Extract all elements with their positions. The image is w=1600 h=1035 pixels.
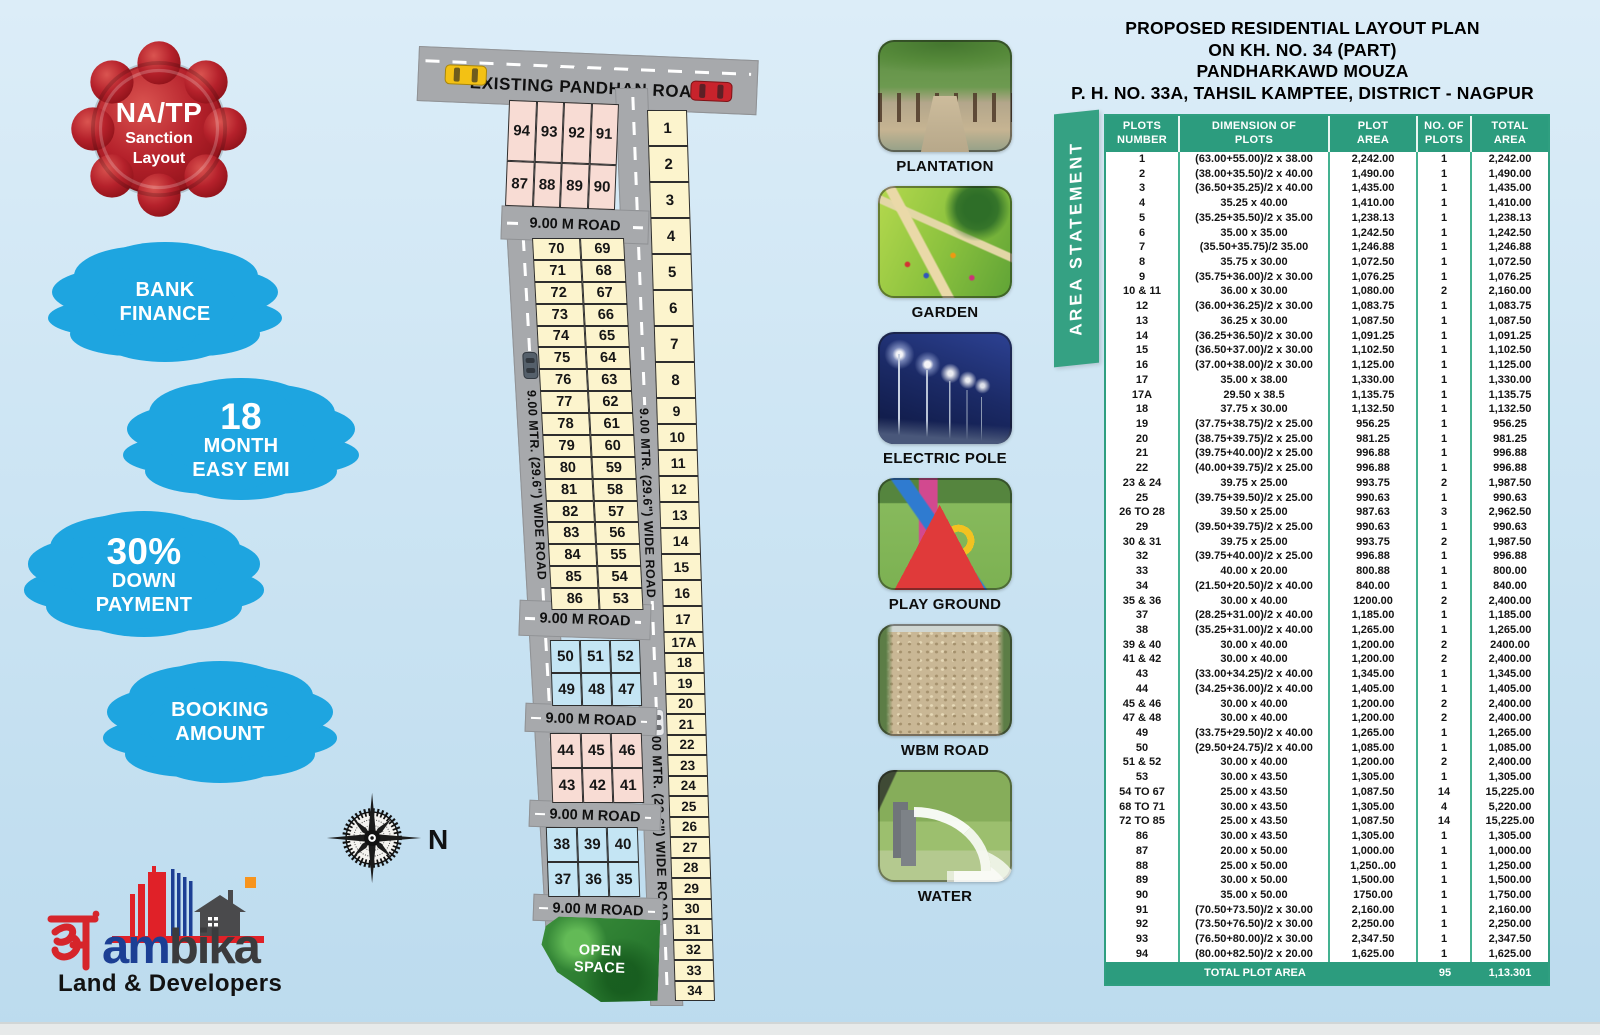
table-cell: 2,400.00: [1472, 697, 1548, 712]
table-cell: 996.88: [1472, 446, 1548, 461]
table-cell: 1,000.00: [1330, 844, 1418, 859]
table-cell: (38.00+35.50)/2 x 40.00: [1180, 167, 1330, 182]
plot-cell: 41: [612, 768, 644, 803]
table-cell: 9: [1106, 270, 1180, 285]
table-cell: (36.50+35.25)/2 x 40.00: [1180, 181, 1330, 196]
table-cell: 2,347.50: [1330, 932, 1418, 947]
table-cell: 1,345.00: [1330, 667, 1418, 682]
table-cell: 18: [1106, 402, 1180, 417]
table-cell: 5: [1106, 211, 1180, 226]
table-cell: 996.88: [1472, 549, 1548, 564]
table-cell: 2: [1418, 697, 1472, 712]
title-line: PROPOSED RESIDENTIAL LAYOUT PLAN: [1030, 18, 1575, 40]
plot-cell: 12: [659, 476, 700, 502]
table-cell: 17: [1106, 373, 1180, 388]
table-cell: 26 TO 28: [1106, 505, 1180, 520]
table-header: PLOTAREA: [1330, 116, 1418, 152]
table-cell: 990.63: [1330, 520, 1418, 535]
plot-cell: 32: [673, 940, 714, 961]
plot-cell: 55: [596, 544, 641, 566]
table-cell: 2,400.00: [1472, 594, 1548, 609]
table-cell: 1200.00: [1330, 594, 1418, 609]
table-cell: 2: [1418, 652, 1472, 667]
table-cell: (33.00+34.25)/2 x 40.00: [1180, 667, 1330, 682]
table-cell: 1,987.50: [1472, 535, 1548, 550]
table-cell: 990.63: [1472, 520, 1548, 535]
plot-cell: 72: [534, 282, 583, 304]
plot-cell: 14: [660, 528, 701, 554]
table-cell: (70.50+73.50)/2 x 30.00: [1180, 903, 1330, 918]
table-cell: (35.25+31.00)/2 x 40.00: [1180, 623, 1330, 638]
amenity-gallery: PLANTATION GARDEN ELECTRIC POLE PLAY GRO…: [872, 40, 1018, 916]
table-cell: 36.25 x 30.00: [1180, 314, 1330, 329]
table-cell: 1,435.00: [1330, 181, 1418, 196]
table-cell: 39.75 x 25.00: [1180, 535, 1330, 550]
table-cell: 1,087.50: [1472, 314, 1548, 329]
table-cell: 987.63: [1330, 505, 1418, 520]
plot-cell: 60: [590, 435, 635, 457]
table-cell: 1,102.50: [1472, 343, 1548, 358]
table-cell: (37.75+38.75)/2 x 25.00: [1180, 417, 1330, 432]
table-cell: 1: [1418, 682, 1472, 697]
plot-block-53-86: 7069716872677366746575647663776278617960…: [532, 238, 643, 610]
table-cell: 8: [1106, 255, 1180, 270]
plot-cell: 36: [578, 862, 610, 897]
natp-sanction-seal: NA/TP Sanction Layout: [70, 40, 248, 222]
plot-cell: 45: [580, 733, 612, 768]
plot-cell: 46: [611, 733, 643, 768]
table-cell: 2: [1418, 755, 1472, 770]
area-statement-banner: AREA STATEMENT: [1054, 110, 1099, 368]
table-cell: 1,135.75: [1472, 388, 1548, 403]
seal-line2: Sanction: [125, 129, 193, 149]
water-photo: [878, 770, 1012, 882]
table-cell: (29.50+24.75)/2 x 40.00: [1180, 741, 1330, 756]
table-cell: 1,345.00: [1472, 667, 1548, 682]
wbm-road-photo: [878, 624, 1012, 736]
table-cell: 41 & 42: [1106, 652, 1180, 667]
table-cell: 35 & 36: [1106, 594, 1180, 609]
plan-title: PROPOSED RESIDENTIAL LAYOUT PLAN ON KH. …: [1030, 18, 1575, 104]
table-cell: (36.50+37.00)/2 x 30.00: [1180, 343, 1330, 358]
table-cell: 1,072.50: [1472, 255, 1548, 270]
plot-block-35-40: 383940373635: [546, 827, 640, 897]
table-total-cell: TOTAL PLOT AREA: [1180, 962, 1330, 984]
plot-cell: 10: [657, 424, 698, 450]
plot-cell: 58: [592, 479, 637, 501]
devanagari-a-icon: [46, 910, 102, 972]
table-cell: 2: [1418, 476, 1472, 491]
layout-plan-map: EXISTING PANDHAN ROAD 9.00 MTR. (29.6") …: [425, 38, 770, 1013]
table-cell: 1,238.13: [1472, 211, 1548, 226]
table-cell: 47 & 48: [1106, 711, 1180, 726]
table-cell: 54 TO 67: [1106, 785, 1180, 800]
table-cell: 1: [1418, 741, 1472, 756]
table-cell: 16: [1106, 358, 1180, 373]
logo-name: am bika: [46, 910, 259, 972]
plot-cell: 25: [669, 796, 710, 817]
table-cell: 1: [1418, 417, 1472, 432]
table-cell: 1,987.50: [1472, 476, 1548, 491]
plot-cell: 70: [532, 238, 581, 260]
gallery-label: ELECTRIC POLE: [883, 450, 1007, 467]
table-cell: 1: [1418, 579, 1472, 594]
table-cell: 29: [1106, 520, 1180, 535]
table-cell: 1,091.25: [1330, 329, 1418, 344]
table-cell: 2,160.00: [1472, 903, 1548, 918]
table-cell: 2,250.00: [1330, 917, 1418, 932]
plot-cell: 84: [548, 544, 597, 566]
table-cell: 10 & 11: [1106, 284, 1180, 299]
table-cell: 1,087.50: [1330, 785, 1418, 800]
table-cell: 1,087.50: [1330, 314, 1418, 329]
table-cell: 30.00 x 50.00: [1180, 873, 1330, 888]
table-cell: 1: [1418, 608, 1472, 623]
badge-line: BANK: [136, 279, 195, 303]
plot-cell: 4: [650, 218, 691, 254]
table-cell: (39.50+39.75)/2 x 25.00: [1180, 520, 1330, 535]
plot-cell: 3: [649, 182, 690, 218]
table-total-cell: [1106, 962, 1180, 984]
table-cell: 21: [1106, 446, 1180, 461]
table-cell: 1,625.00: [1472, 947, 1548, 962]
gallery-label: WATER: [918, 888, 973, 905]
nine-m-road: 9.00 M ROAD: [525, 703, 658, 737]
plot-cell: 29: [671, 878, 712, 899]
plot-cell: 42: [582, 768, 614, 803]
plot-cell: 13: [659, 502, 700, 528]
table-cell: 1750.00: [1330, 888, 1418, 903]
open-space-label: OPEN: [578, 942, 622, 961]
table-cell: 30.00 x 40.00: [1180, 652, 1330, 667]
table-cell: 1,410.00: [1330, 196, 1418, 211]
table-cell: 1: [1418, 402, 1472, 417]
table-header: NO. OFPLOTS: [1418, 116, 1472, 152]
table-cell: 72 TO 85: [1106, 814, 1180, 829]
plot-cell: 83: [547, 522, 596, 544]
plot-cell: 19: [665, 673, 706, 694]
table-cell: 2,962.50: [1472, 505, 1548, 520]
badge-line: EASY EMI: [192, 459, 290, 483]
road-label: 9.00 M ROAD: [541, 710, 641, 729]
gallery-label: PLAY GROUND: [889, 596, 1002, 613]
table-cell: 956.25: [1472, 417, 1548, 432]
table-cell: 800.00: [1472, 564, 1548, 579]
table-cell: 1,125.00: [1330, 358, 1418, 373]
table-cell: 2: [1418, 284, 1472, 299]
plot-cell: 48: [581, 673, 612, 706]
plot-cell: 9: [656, 398, 697, 424]
plot-cell: 75: [538, 347, 587, 369]
plot-cell: 91: [589, 103, 619, 165]
table-cell: 25.00 x 50.00: [1180, 859, 1330, 874]
gallery-item: PLANTATION: [872, 40, 1018, 175]
badge-big: 18: [220, 398, 262, 435]
plot-cell: 59: [591, 457, 636, 479]
road-label: 9.00 M ROAD: [545, 806, 645, 825]
plot-cell: 2: [648, 146, 689, 182]
developer-logo: am bika Land & Developers: [40, 852, 330, 1010]
table-cell: 15: [1106, 343, 1180, 358]
plot-cell: 23: [667, 755, 708, 776]
table-cell: 1,242.50: [1330, 226, 1418, 241]
table-total-cell: [1330, 962, 1418, 984]
table-cell: 1: [1418, 388, 1472, 403]
table-cell: (39.75+40.00)/2 x 25.00: [1180, 446, 1330, 461]
logo-name-part2: bika: [169, 923, 259, 972]
table-cell: 1,500.00: [1472, 873, 1548, 888]
table-cell: (73.50+76.50)/2 x 30.00: [1180, 917, 1330, 932]
table-cell: 1,330.00: [1472, 373, 1548, 388]
road-label: 9.00 M ROAD: [525, 215, 625, 234]
badge-line: BOOKING: [171, 699, 269, 723]
plot-cell: 39: [576, 827, 608, 862]
table-cell: 1,083.75: [1330, 299, 1418, 314]
table-cell: 2,400.00: [1472, 755, 1548, 770]
table-cell: 25.00 x 43.50: [1180, 814, 1330, 829]
table-cell: 990.63: [1472, 491, 1548, 506]
table-cell: 1: [1418, 167, 1472, 182]
plot-cell: 30: [672, 899, 713, 920]
table-cell: 2,160.00: [1330, 903, 1418, 918]
table-cell: 1: [1418, 549, 1472, 564]
table-cell: 94: [1106, 947, 1180, 962]
plot-cell: 5: [652, 254, 693, 290]
table-cell: 6: [1106, 226, 1180, 241]
table-cell: 39 & 40: [1106, 638, 1180, 653]
table-cell: 1,102.50: [1330, 343, 1418, 358]
table-cell: 37: [1106, 608, 1180, 623]
table-cell: 30.00 x 43.50: [1180, 800, 1330, 815]
table-cell: 30.00 x 40.00: [1180, 711, 1330, 726]
plot-cell: 17A: [663, 632, 704, 653]
table-cell: 1: [1418, 226, 1472, 241]
plot-cell: 66: [583, 304, 628, 326]
table-cell: 1,246.88: [1330, 240, 1418, 255]
table-cell: 1: [1418, 432, 1472, 447]
plot-cell: 67: [582, 282, 627, 304]
garden-photo: [878, 186, 1012, 298]
badge-easy-emi: 18 MONTH EASY EMI: [138, 364, 344, 516]
badge-line: FINANCE: [120, 303, 211, 327]
table-cell: 1,750.00: [1472, 888, 1548, 903]
table-cell: 1: [1418, 314, 1472, 329]
plot-cell: 63: [587, 369, 632, 391]
table-cell: 1: [1418, 446, 1472, 461]
table-cell: 1,185.00: [1330, 608, 1418, 623]
table-cell: 1,238.13: [1330, 211, 1418, 226]
table-cell: (35.50+35.75)/2 35.00: [1180, 240, 1330, 255]
compass-rose-icon: [324, 788, 424, 892]
table-header: DIMENSION OFPLOTS: [1180, 116, 1330, 152]
table-cell: (37.00+38.00)/2 x 30.00: [1180, 358, 1330, 373]
table-cell: 996.88: [1330, 461, 1418, 476]
table-cell: 1: [1418, 240, 1472, 255]
badge-down-payment: 30% DOWN PAYMENT: [38, 496, 250, 654]
table-cell: 5,220.00: [1472, 800, 1548, 815]
table-cell: 2,250.00: [1472, 917, 1548, 932]
seal-text: NA/TP Sanction Layout: [70, 40, 248, 222]
table-cell: 1,405.00: [1472, 682, 1548, 697]
table-cell: 32: [1106, 549, 1180, 564]
table-cell: 1,242.50: [1472, 226, 1548, 241]
car-icon: [522, 352, 539, 379]
table-cell: 1: [1418, 667, 1472, 682]
plot-cell: 80: [543, 457, 592, 479]
table-cell: 1,087.50: [1330, 814, 1418, 829]
plot-cell: 40: [607, 827, 639, 862]
table-cell: 53: [1106, 770, 1180, 785]
table-cell: 1,072.50: [1330, 255, 1418, 270]
table-cell: 1,305.00: [1330, 770, 1418, 785]
table-cell: 15,225.00: [1472, 785, 1548, 800]
plot-cell: 8: [655, 362, 696, 398]
table-cell: 1,076.25: [1330, 270, 1418, 285]
table-cell: 2,242.00: [1330, 152, 1418, 167]
table-cell: 2,160.00: [1472, 284, 1548, 299]
table-cell: 1,250..00: [1330, 859, 1418, 874]
table-cell: (40.00+39.75)/2 x 25.00: [1180, 461, 1330, 476]
plot-cell: 73: [535, 304, 584, 326]
table-cell: (39.75+40.00)/2 x 25.00: [1180, 549, 1330, 564]
seal-line1: NA/TP: [116, 97, 203, 129]
table-cell: 25: [1106, 491, 1180, 506]
plot-cell: 76: [539, 369, 588, 391]
table-cell: 1: [1418, 520, 1472, 535]
plot-cell: 43: [551, 768, 583, 803]
table-cell: (33.75+29.50)/2 x 40.00: [1180, 726, 1330, 741]
table-cell: 22: [1106, 461, 1180, 476]
table-cell: 1,085.00: [1330, 741, 1418, 756]
road-label: 9.00 M ROAD: [535, 610, 635, 629]
table-cell: 92: [1106, 917, 1180, 932]
plot-cell: 87: [505, 161, 534, 207]
table-cell: 35.00 x 50.00: [1180, 888, 1330, 903]
plot-cell: 82: [546, 501, 595, 523]
table-cell: 1,200.00: [1330, 755, 1418, 770]
plot-cell: 44: [550, 733, 582, 768]
table-cell: 40.00 x 20.00: [1180, 564, 1330, 579]
car-icon: [444, 64, 487, 86]
table-cell: (80.00+82.50)/2 x 20.00: [1180, 947, 1330, 962]
plot-cell: 86: [550, 588, 599, 610]
gallery-item: WATER: [872, 770, 1018, 905]
table-cell: 1: [1418, 270, 1472, 285]
table-cell: 12: [1106, 299, 1180, 314]
plot-cell: 37: [547, 862, 579, 897]
table-cell: 1,000.00: [1472, 844, 1548, 859]
table-cell: 90: [1106, 888, 1180, 903]
plot-cell: 79: [542, 435, 591, 457]
table-cell: 1: [1418, 255, 1472, 270]
table-cell: (28.25+31.00)/2 x 40.00: [1180, 608, 1330, 623]
table-cell: 86: [1106, 829, 1180, 844]
plot-cell: 24: [668, 776, 709, 797]
table-cell: 990.63: [1330, 491, 1418, 506]
table-cell: 1: [1418, 211, 1472, 226]
plot-cell: 16: [662, 580, 703, 606]
plot-cell: 51: [580, 640, 611, 673]
table-cell: 1,435.00: [1472, 181, 1548, 196]
table-cell: 45 & 46: [1106, 697, 1180, 712]
plot-cell: 74: [537, 326, 586, 348]
plot-cell: 85: [549, 566, 598, 588]
plot-cell: 22: [667, 735, 708, 756]
table-cell: 993.75: [1330, 535, 1418, 550]
table-cell: 956.25: [1330, 417, 1418, 432]
table-cell: 93: [1106, 932, 1180, 947]
table-cell: 1: [1418, 873, 1472, 888]
table-cell: 30.00 x 40.00: [1180, 638, 1330, 653]
plot-cell: 27: [670, 837, 711, 858]
table-cell: 88: [1106, 859, 1180, 874]
plot-cell: 92: [562, 102, 592, 164]
table-cell: 993.75: [1330, 476, 1418, 491]
table-cell: 1,265.00: [1330, 623, 1418, 638]
table-cell: 1,490.00: [1472, 167, 1548, 182]
table-cell: 2: [1418, 638, 1472, 653]
table-cell: 981.25: [1472, 432, 1548, 447]
table-cell: 50: [1106, 741, 1180, 756]
table-cell: 51 & 52: [1106, 755, 1180, 770]
table-cell: 39.50 x 25.00: [1180, 505, 1330, 520]
table-cell: 2: [1418, 535, 1472, 550]
table-cell: 1,083.75: [1472, 299, 1548, 314]
table-total-cell: 95: [1418, 962, 1472, 984]
plot-cell: 57: [594, 501, 639, 523]
table-cell: 91: [1106, 903, 1180, 918]
plot-cell: 28: [670, 858, 711, 879]
table-cell: 1,200.00: [1330, 638, 1418, 653]
plot-cell: 6: [653, 290, 694, 326]
table-cell: 2,400.00: [1472, 711, 1548, 726]
plot-cell: 50: [550, 640, 581, 673]
table-cell: 14: [1106, 329, 1180, 344]
table-cell: 13: [1106, 314, 1180, 329]
table-cell: 996.88: [1472, 461, 1548, 476]
table-cell: 89: [1106, 873, 1180, 888]
table-cell: 1,246.88: [1472, 240, 1548, 255]
table-cell: 1: [1418, 829, 1472, 844]
table-cell: 1,185.00: [1472, 608, 1548, 623]
table-cell: 1,305.00: [1472, 770, 1548, 785]
table-cell: 38: [1106, 623, 1180, 638]
table-cell: 1: [1418, 329, 1472, 344]
table-cell: 1,200.00: [1330, 697, 1418, 712]
table-cell: 1,132.50: [1472, 402, 1548, 417]
table-cell: 1,625.00: [1330, 947, 1418, 962]
electric-pole-photo: [878, 332, 1012, 444]
table-cell: 33: [1106, 564, 1180, 579]
plot-cell: 53: [598, 588, 643, 610]
plot-cell: 52: [610, 640, 641, 673]
table-cell: 840.00: [1330, 579, 1418, 594]
plot-cell: 94: [507, 100, 537, 162]
plot-cell: 88: [532, 162, 561, 208]
table-cell: 1,305.00: [1330, 829, 1418, 844]
table-cell: 1,305.00: [1472, 829, 1548, 844]
table-cell: (35.75+36.00)/2 x 30.00: [1180, 270, 1330, 285]
plot-cell: 61: [589, 413, 634, 435]
table-cell: 1,330.00: [1330, 373, 1418, 388]
plot-cell: 89: [560, 163, 589, 209]
table-cell: 996.88: [1330, 549, 1418, 564]
page-footer-strip: [0, 1022, 1600, 1035]
badge-line: DOWN: [112, 570, 177, 594]
seal-line3: Layout: [133, 149, 185, 169]
table-cell: 2,347.50: [1472, 932, 1548, 947]
table-cell: (63.00+55.00)/2 x 38.00: [1180, 152, 1330, 167]
